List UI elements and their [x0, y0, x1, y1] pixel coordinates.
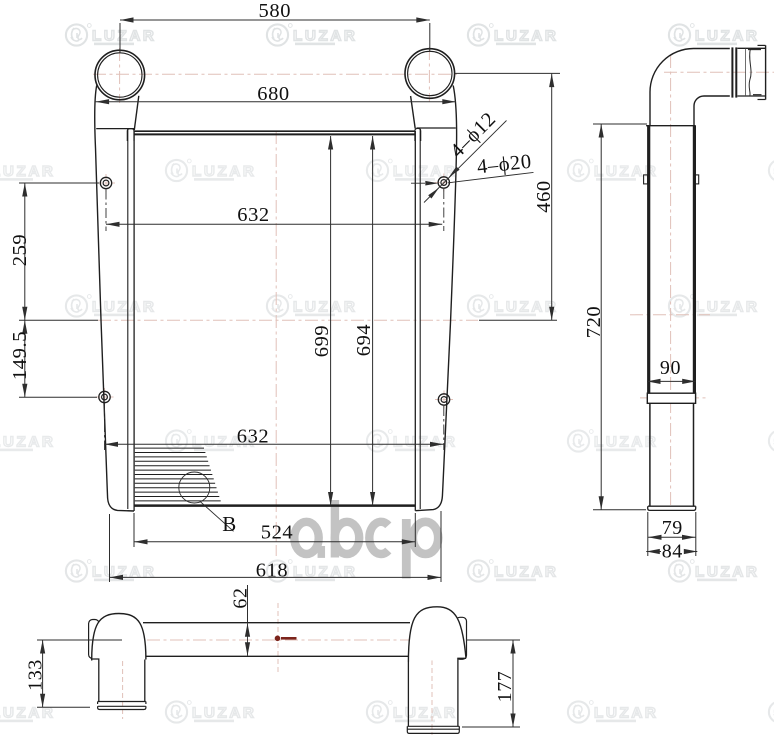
svg-text:84: 84 [662, 541, 683, 563]
svg-text:LUZAR: LUZAR [92, 28, 156, 45]
svg-text:680: 680 [257, 83, 290, 105]
svg-text:524: 524 [261, 522, 294, 544]
svg-text:LUZAR: LUZAR [393, 705, 457, 722]
svg-text:694: 694 [353, 324, 375, 357]
svg-text:B: B [222, 512, 237, 536]
svg-text:LUZAR: LUZAR [293, 28, 357, 45]
svg-text:720: 720 [583, 306, 605, 339]
svg-text:LUZAR: LUZAR [0, 434, 55, 451]
svg-text:79: 79 [662, 517, 683, 539]
svg-text:LUZAR: LUZAR [92, 299, 156, 316]
svg-text:632: 632 [237, 426, 270, 448]
svg-text:LUZAR: LUZAR [293, 564, 357, 581]
svg-text:LUZAR: LUZAR [494, 299, 558, 316]
svg-text:LUZAR: LUZAR [293, 299, 357, 316]
svg-text:LUZAR: LUZAR [594, 434, 658, 451]
svg-text:149.5: 149.5 [9, 331, 31, 380]
svg-text:LUZAR: LUZAR [594, 705, 658, 722]
svg-text:177: 177 [494, 671, 516, 703]
svg-text:LUZAR: LUZAR [695, 299, 759, 316]
svg-text:618: 618 [256, 559, 289, 581]
svg-text:460: 460 [533, 180, 555, 213]
svg-text:133: 133 [25, 659, 47, 691]
svg-text:LUZAR: LUZAR [0, 163, 55, 180]
svg-text:259: 259 [9, 234, 31, 267]
svg-text:699: 699 [311, 325, 333, 358]
svg-text:LUZAR: LUZAR [92, 564, 156, 581]
svg-text:LUZAR: LUZAR [192, 705, 256, 722]
svg-text:90: 90 [660, 357, 681, 379]
svg-text:LUZAR: LUZAR [393, 163, 457, 180]
svg-text:LUZAR: LUZAR [695, 28, 759, 45]
svg-text:LUZAR: LUZAR [695, 564, 759, 581]
svg-text:LUZAR: LUZAR [393, 434, 457, 451]
svg-text:632: 632 [237, 204, 270, 226]
svg-text:LUZAR: LUZAR [192, 163, 256, 180]
svg-text:LUZAR: LUZAR [494, 28, 558, 45]
svg-text:62: 62 [230, 587, 252, 608]
svg-text:LUZAR: LUZAR [494, 564, 558, 581]
svg-text:580: 580 [259, 0, 292, 22]
